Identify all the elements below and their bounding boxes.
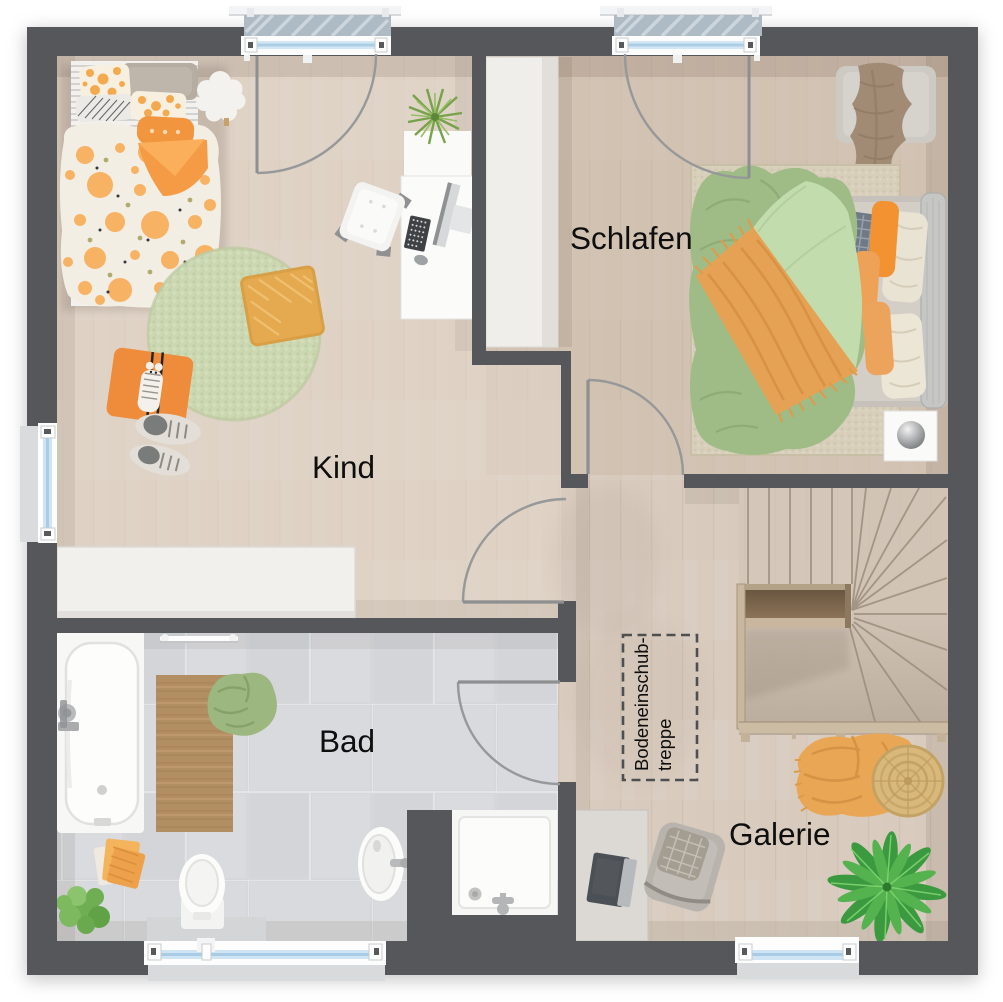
svg-text:Bodeneinschub-: Bodeneinschub- [631, 637, 652, 771]
svg-text:Galerie: Galerie [729, 816, 831, 852]
svg-text:Kind: Kind [312, 449, 375, 485]
svg-text:Schlafen: Schlafen [570, 220, 693, 256]
svg-text:treppe: treppe [654, 719, 675, 771]
svg-text:Bad: Bad [319, 723, 375, 759]
